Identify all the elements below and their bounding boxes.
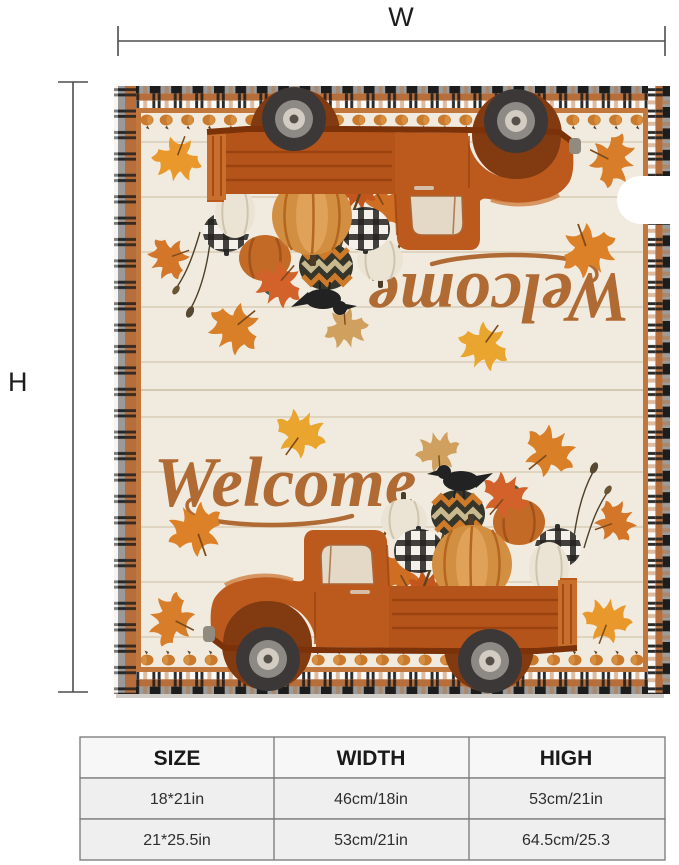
svg-text:18*21in: 18*21in xyxy=(150,791,204,808)
svg-text:SIZE: SIZE xyxy=(154,747,201,770)
svg-text:HIGH: HIGH xyxy=(540,747,593,770)
svg-text:H: H xyxy=(8,367,28,397)
svg-text:64.5cm/25.3: 64.5cm/25.3 xyxy=(522,832,610,849)
svg-text:WIDTH: WIDTH xyxy=(337,747,406,770)
svg-text:46cm/18in: 46cm/18in xyxy=(334,791,408,808)
svg-text:W: W xyxy=(388,2,414,32)
svg-text:53cm/21in: 53cm/21in xyxy=(529,791,603,808)
svg-text:21*25.5in: 21*25.5in xyxy=(143,832,211,849)
svg-text:53cm/21in: 53cm/21in xyxy=(334,832,408,849)
